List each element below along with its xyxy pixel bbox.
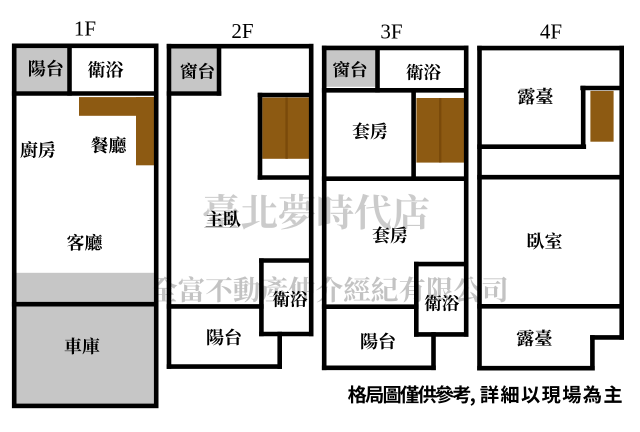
svg-text:3F: 3F	[380, 19, 402, 43]
svg-text:1F: 1F	[74, 17, 96, 41]
svg-text:4F: 4F	[540, 20, 562, 44]
svg-text:2F: 2F	[231, 19, 253, 43]
